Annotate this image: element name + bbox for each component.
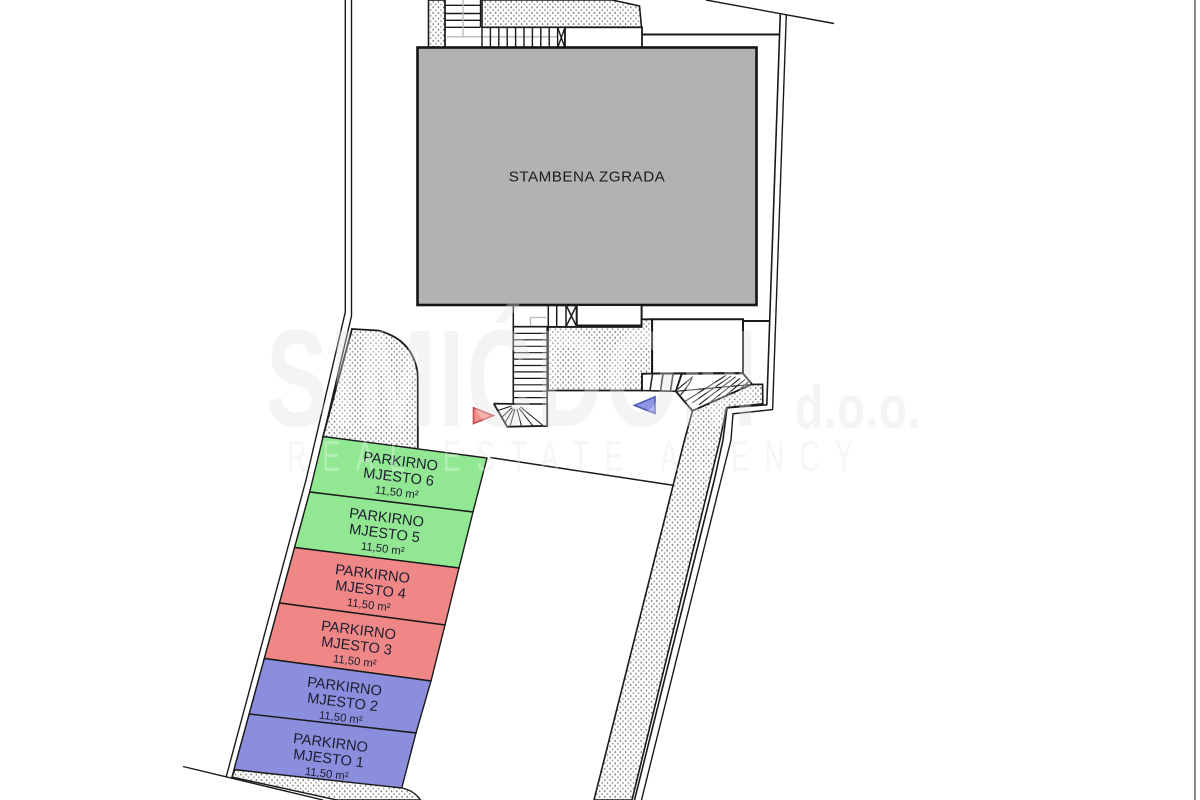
svg-text:REAL ESTATE AGENCY: REAL ESTATE AGENCY xyxy=(287,431,869,481)
svg-text:STAMBENA ZGRADA: STAMBENA ZGRADA xyxy=(509,169,666,186)
